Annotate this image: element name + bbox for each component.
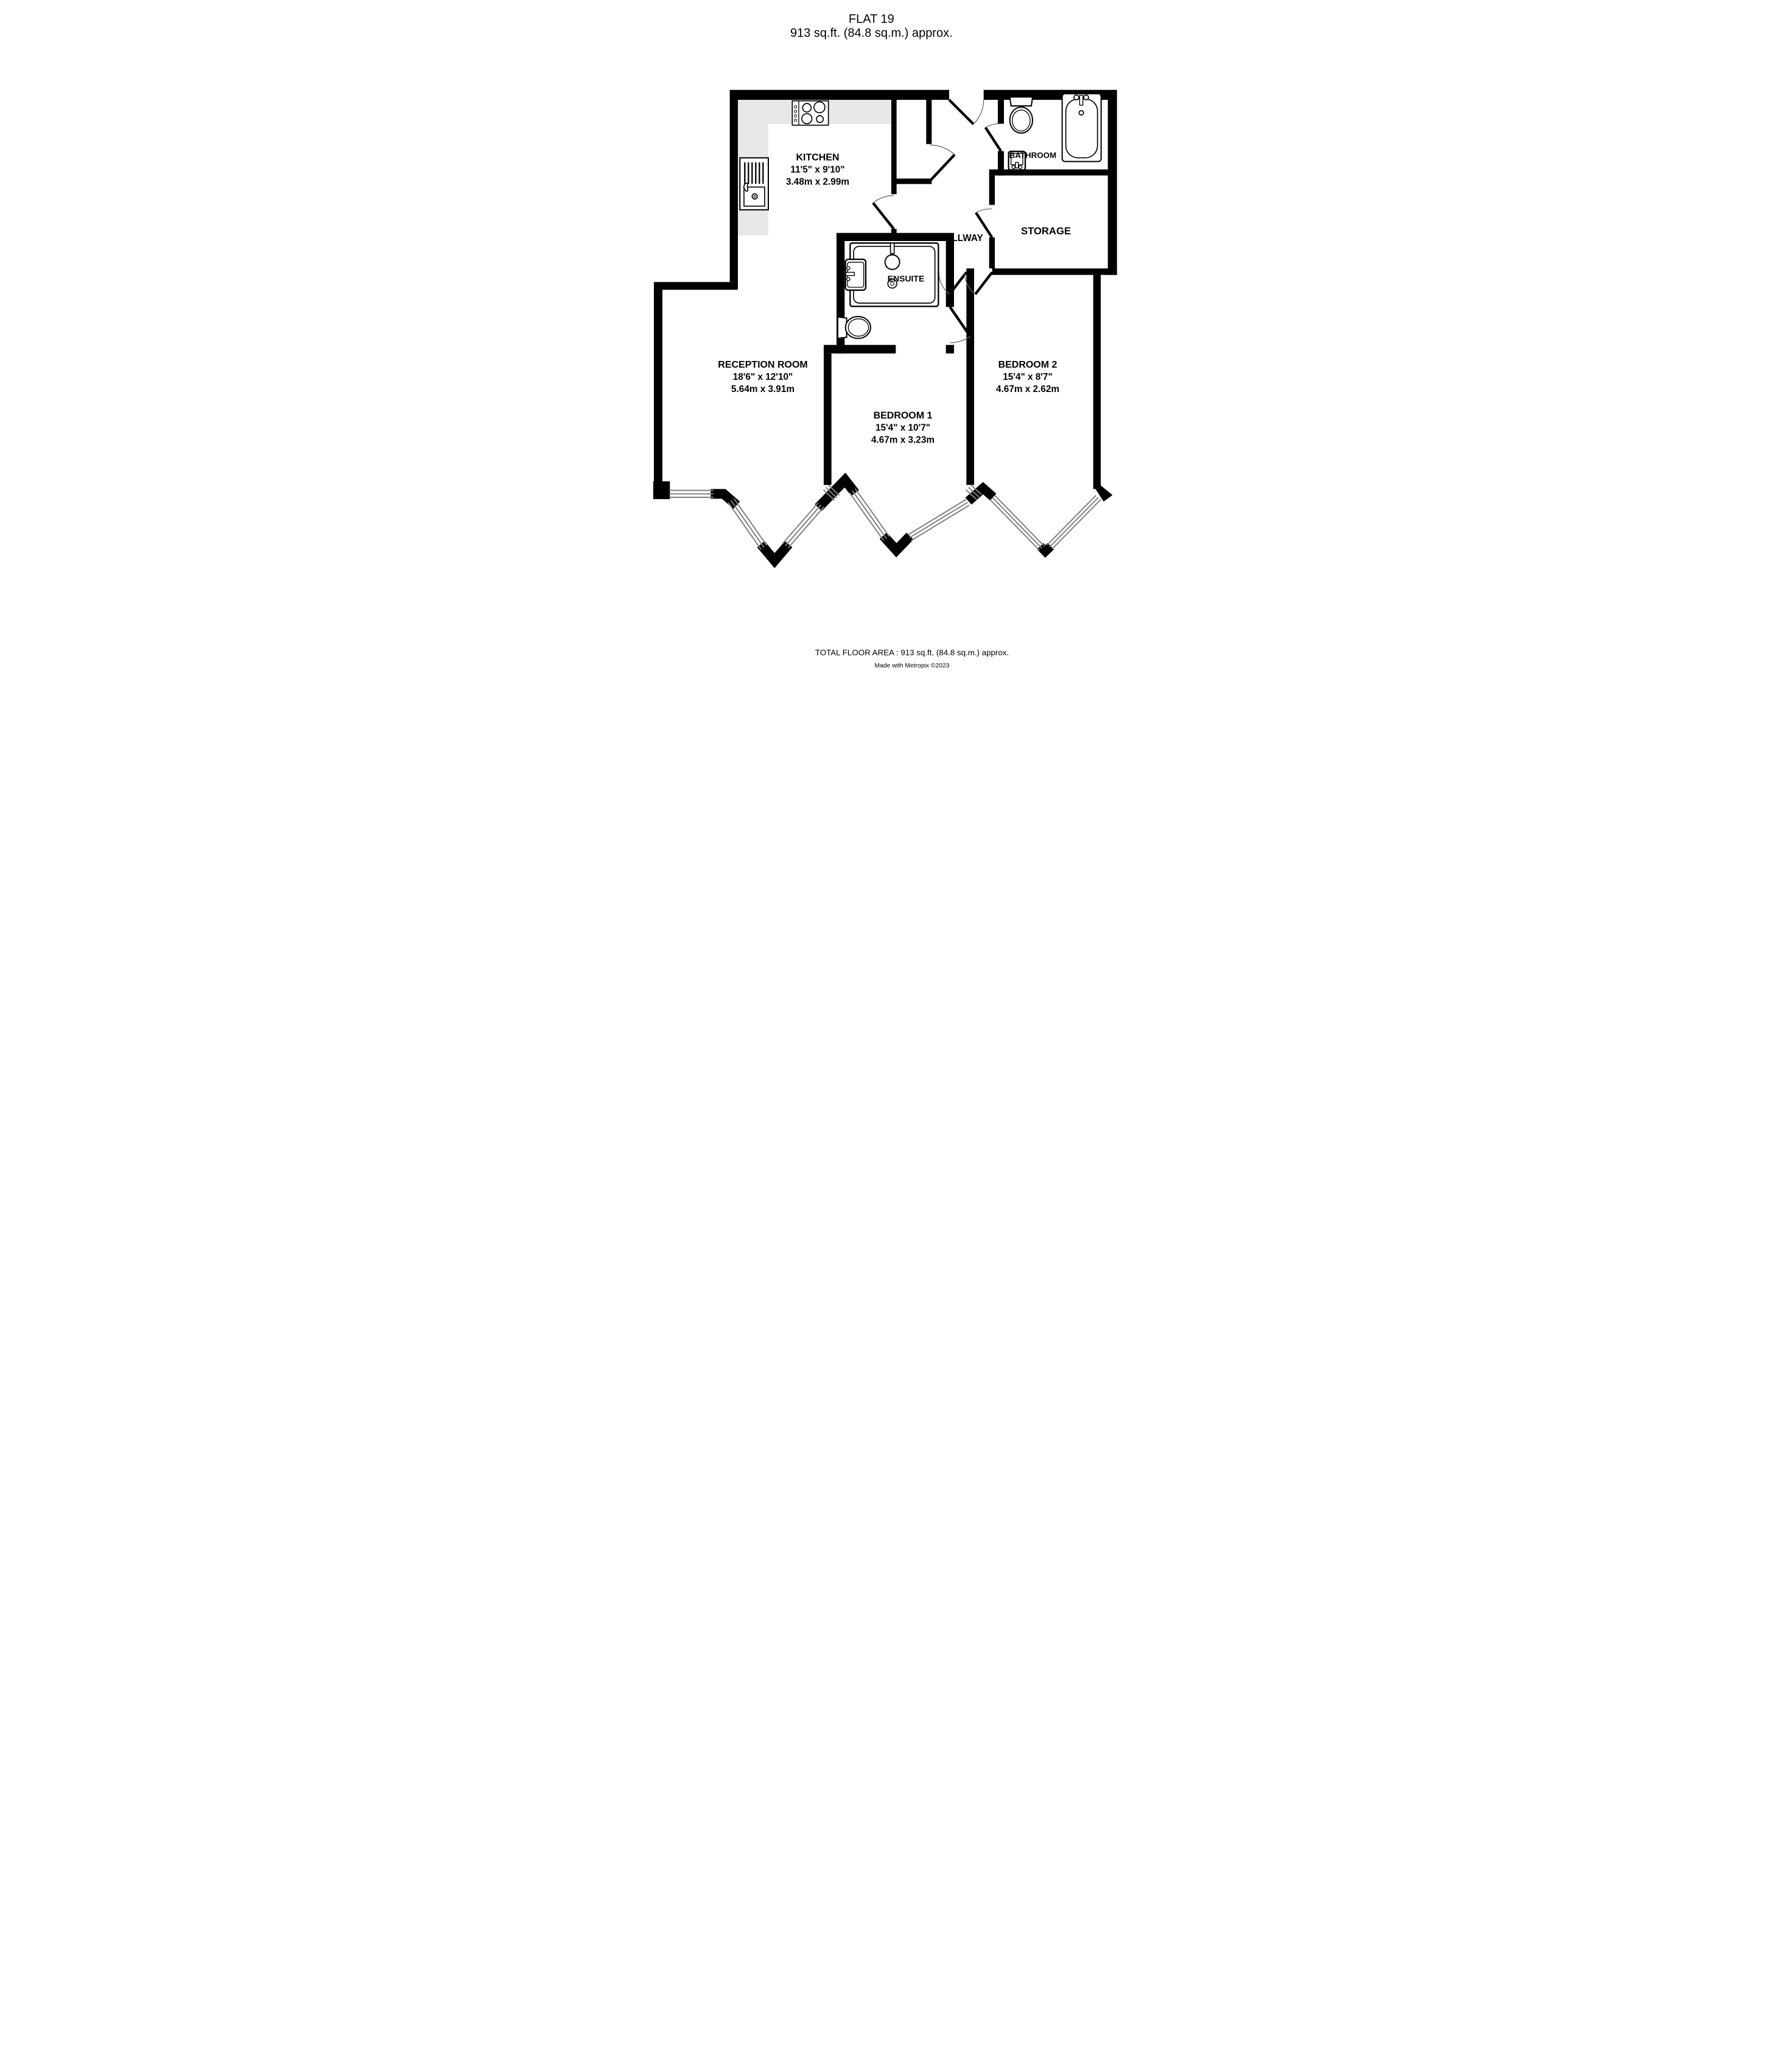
plan-subtitle: 913 sq.ft. (84.8 sq.m.) approx. [790, 27, 953, 40]
ensuite-label: ENSUITE [888, 274, 925, 284]
bathroom-label: BATHROOM [1009, 150, 1057, 159]
kitchen-dims-metric: 3.48m x 2.99m [786, 177, 849, 187]
bedroom1-dims-metric: 4.67m x 3.23m [871, 435, 935, 445]
ensuite-toilet-icon [838, 317, 871, 338]
reception-vestibule-door [873, 195, 894, 229]
stove-icon [792, 101, 828, 125]
floor-plan-canvas: FLAT 19 913 sq.ft. (84.8 sq.m.) approx. … [589, 0, 1179, 691]
fixtures [740, 94, 1101, 338]
kitchen-door [930, 145, 955, 180]
hallway-label: HALLWAY [938, 233, 983, 243]
reception-dims-metric: 5.64m x 3.91m [731, 384, 795, 394]
walls [653, 90, 1117, 561]
reception-label: RECEPTION ROOM [718, 360, 807, 370]
bedroom2-label: BEDROOM 2 [998, 360, 1058, 370]
bathroom-toilet-icon [1010, 97, 1033, 133]
plan-title: FLAT 19 [849, 12, 894, 26]
reception-dims-imperial: 18'6" x 12'10" [733, 372, 793, 382]
floor-plan: FLAT 19 913 sq.ft. (84.8 sq.m.) approx. … [589, 0, 1179, 691]
kitchen-sink-icon [740, 158, 768, 209]
bedroom1-label: BEDROOM 1 [874, 410, 933, 421]
front-door [949, 100, 984, 124]
window-reception-bay-right [782, 503, 824, 548]
ensuite-sink-icon [846, 259, 866, 290]
storage-label: STORAGE [1021, 225, 1071, 237]
kitchen-label: KITCHEN [796, 152, 839, 163]
bedroom1-dims-imperial: 15'4" x 10'7" [875, 422, 930, 433]
bathtub-icon [1062, 94, 1101, 161]
window-bedroom2-bay-left [990, 495, 1044, 550]
metropix-credit: Made with Metropix ©2023 [874, 663, 949, 670]
total-floor-area: TOTAL FLOOR AREA : 913 sq.ft. (84.8 sq.m… [815, 648, 1009, 657]
kitchen-dims-imperial: 11'5" x 9'10" [790, 164, 844, 175]
window-bedroom2-bay-right [1047, 495, 1101, 549]
bathroom-door [986, 124, 1001, 151]
bedroom2-dims-imperial: 15'4" x 8'7" [1003, 372, 1053, 382]
bedroom2-dims-metric: 4.67m x 2.62m [996, 384, 1059, 394]
